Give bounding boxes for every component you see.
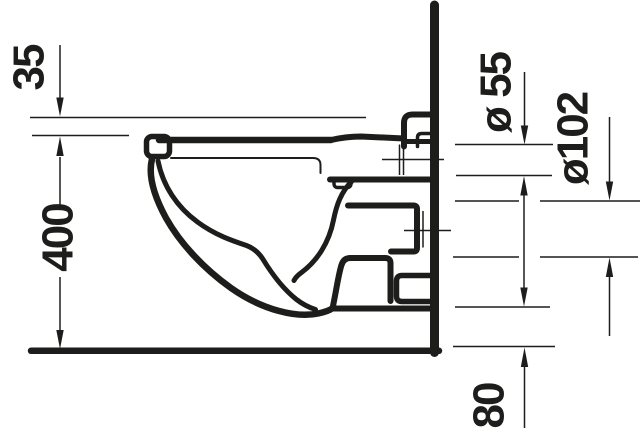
arrow-up-icon — [56, 137, 63, 157]
bowl-outer-line — [151, 159, 332, 315]
bowl-inner-line — [158, 161, 316, 310]
dimension-height-400: 400 — [34, 204, 83, 349]
technical-drawing-page: 35 400 ø 55 ø102 — [0, 0, 640, 433]
dimension-clearance-80: 80 — [453, 307, 555, 428]
underside-mound — [333, 258, 391, 306]
outlet-spigot-outline — [348, 206, 417, 252]
arrow-down-icon — [56, 98, 63, 117]
seat-underside-line — [171, 158, 321, 173]
toilet-profile — [147, 115, 452, 315]
dim-label-80: 80 — [465, 383, 514, 428]
arrow-down-icon — [521, 126, 528, 145]
arrow-up-icon — [520, 176, 527, 196]
dim-label-35: 35 — [5, 44, 54, 90]
dimension-flush-pipe-55: ø 55 — [455, 51, 553, 306]
dim-label-400: 400 — [34, 204, 83, 272]
dim-label-o102: ø102 — [549, 92, 598, 185]
arrow-down-icon — [606, 182, 613, 201]
rear-block-top-line — [331, 137, 404, 141]
dimension-seat-top-35: 35 — [5, 44, 367, 205]
arrow-down-icon — [520, 288, 527, 307]
arrow-up-icon — [521, 348, 528, 368]
toilet-side-elevation-drawing: 35 400 ø 55 ø102 — [0, 0, 640, 433]
arrow-up-icon — [606, 258, 613, 278]
arrow-down-icon — [56, 330, 63, 349]
dim-label-o55: ø 55 — [472, 51, 521, 133]
